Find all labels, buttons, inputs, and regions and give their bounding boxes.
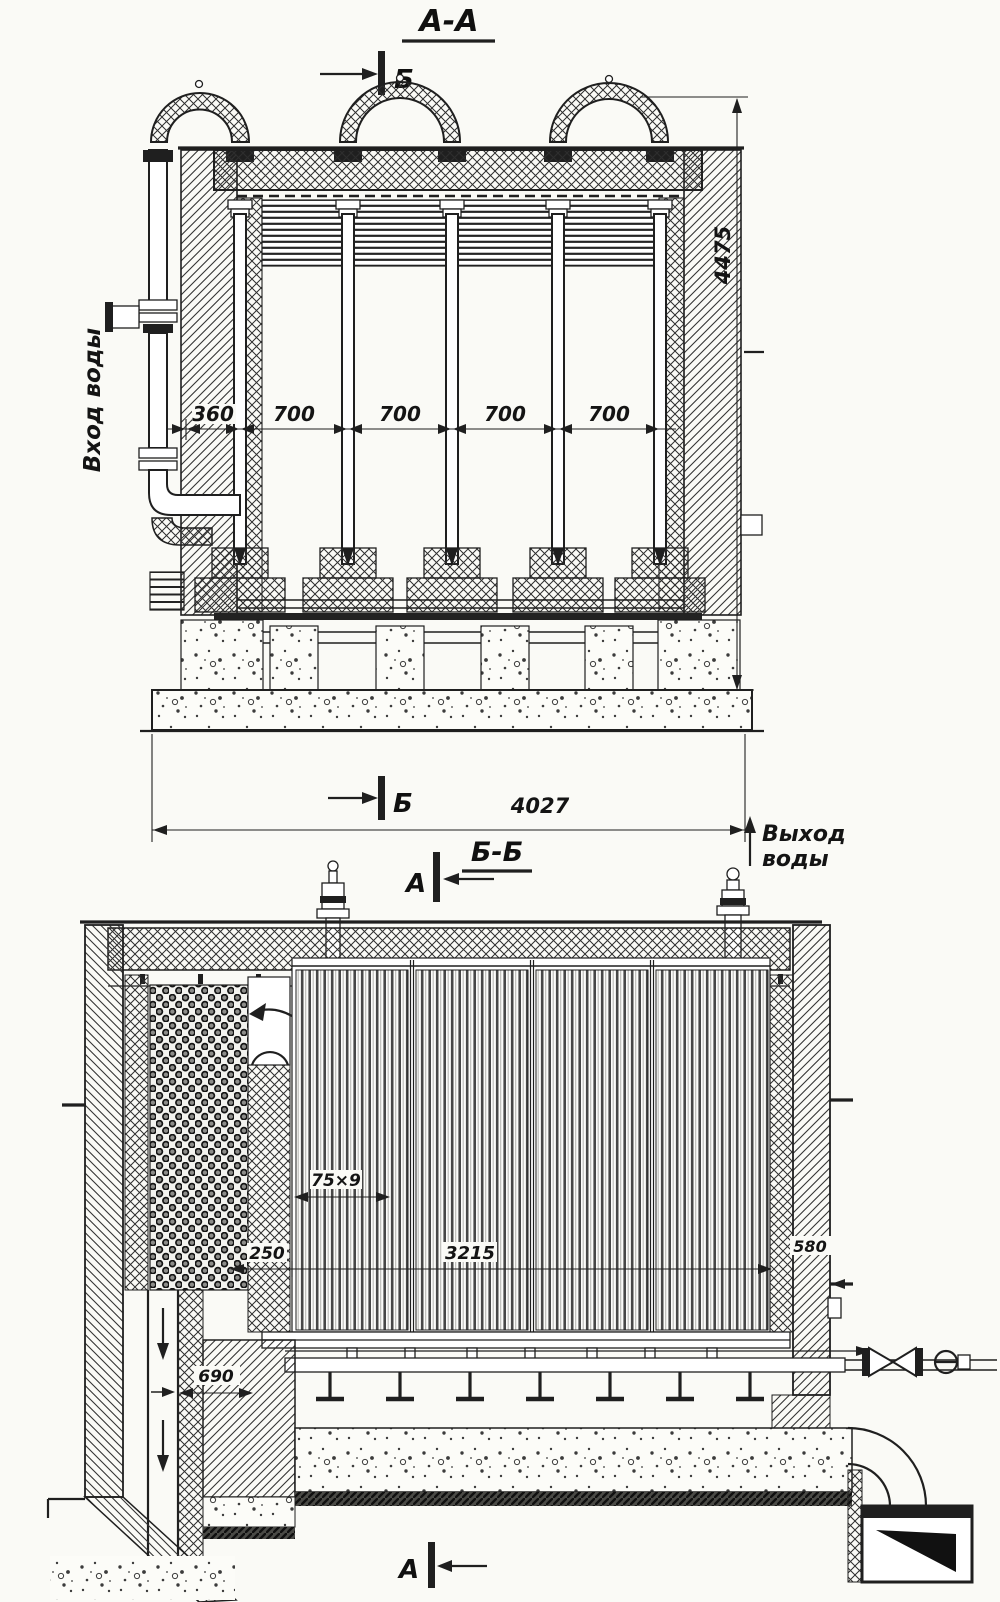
dim-4027: 4027: [510, 794, 570, 818]
wall-fitting: [741, 515, 762, 535]
dim-360: 360: [192, 402, 234, 426]
drain-elbow-and-pit: [848, 1428, 972, 1582]
technical-drawing-sheet: А-А Б: [0, 0, 1000, 1602]
foundation: [140, 620, 764, 731]
section-marker-a-bottom: А: [397, 1542, 487, 1588]
flow-down-arrow-icon: [157, 1455, 169, 1472]
vent-nipple-icon: [196, 81, 203, 88]
dim-690: 690: [198, 1367, 234, 1387]
arrow-up-icon: [744, 816, 756, 833]
dim-3215: 3215: [445, 1243, 495, 1264]
dim-700-4: 700: [588, 402, 630, 426]
right-lining: [770, 975, 793, 1332]
section-marker-b-bottom: Б: [328, 776, 413, 820]
dim-580: 580: [793, 1237, 826, 1256]
furnace-casing: [178, 148, 764, 615]
tube-screen-panels: [292, 958, 770, 1348]
drain-stub-comb: [150, 572, 184, 610]
dim-75x9: 75×9: [311, 1171, 361, 1191]
support-feet: [316, 1372, 764, 1399]
arrow-right-icon: [362, 792, 378, 804]
right-wall: [793, 925, 830, 1395]
arrow-left-icon: [437, 1560, 452, 1572]
dim-700-3: 700: [484, 402, 526, 426]
dim-700-2: 700: [379, 402, 421, 426]
economizer-tube-bank: [150, 985, 248, 1290]
right-brick-wall: [684, 150, 741, 615]
svg-text:Б: Б: [393, 789, 413, 819]
bottom-view-title: Б-Б: [471, 837, 523, 868]
valve-body-icon: [869, 1348, 893, 1376]
outlet-label-line1: Выход: [762, 822, 846, 847]
outlet-label-line2: воды: [762, 847, 829, 872]
bottom-foundation: [203, 1395, 852, 1539]
top-view-title: А-А: [418, 4, 479, 39]
svg-text:А: А: [397, 1555, 419, 1585]
svg-text:А: А: [404, 869, 426, 899]
bottom-view-section-b-b: Б-Б А Выход воды: [48, 816, 997, 1602]
vent-nipple-icon: [397, 75, 404, 82]
inlet-label: Вход воды: [80, 328, 106, 473]
wall-bracket: [828, 1298, 841, 1318]
dim-4475: 4475: [711, 226, 735, 285]
arrow-right-icon: [362, 68, 378, 80]
left-wall: [85, 925, 123, 1497]
width-dimension: 4027: [152, 734, 745, 842]
water-outlet-callout: Выход воды: [744, 816, 846, 872]
vent-nipple-icon: [606, 76, 613, 83]
dim-250: 250: [249, 1244, 285, 1264]
left-lining: [125, 975, 148, 1290]
arrow-left-icon: [443, 873, 459, 885]
left-masonry-block: [203, 1340, 295, 1497]
insulated-roof-slab: [214, 150, 702, 190]
boiler-section-drawing: А-А Б: [0, 0, 1000, 1602]
top-view-section-a-a: А-А Б: [80, 4, 764, 842]
bottom-headers: [262, 1332, 997, 1399]
dim-700-1: 700: [273, 402, 315, 426]
flow-down-arrow-icon: [157, 1343, 169, 1360]
tube-support-pedestals: [195, 548, 705, 620]
